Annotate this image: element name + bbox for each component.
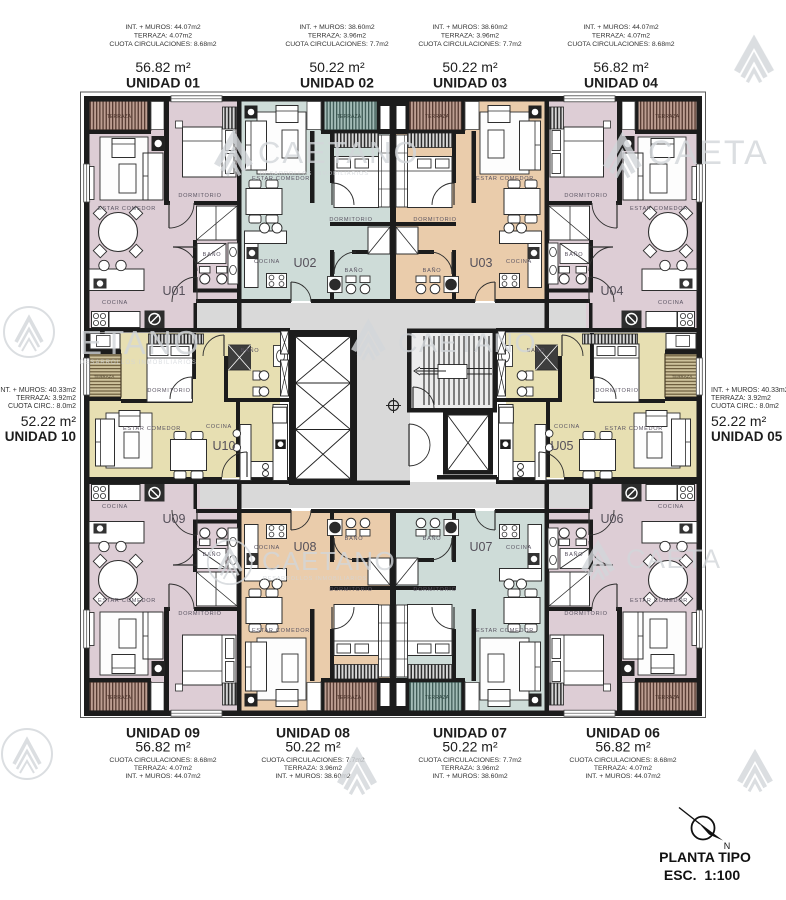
svg-text:52.22 m²: 52.22 m² (711, 413, 767, 429)
svg-text:ESTAR COMEDOR: ESTAR COMEDOR (98, 598, 156, 604)
svg-text:TERRAZA: 4.07m2: TERRAZA: 4.07m2 (592, 33, 650, 40)
svg-text:DORMITORIO: DORMITORIO (595, 388, 638, 394)
svg-text:U01: U01 (163, 284, 186, 298)
svg-text:DESARROLLOS INMOBILIARIOS: DESARROLLOS INMOBILIARIOS (260, 171, 369, 177)
svg-text:BAÑO: BAÑO (565, 551, 584, 558)
svg-text:ESTAR COMEDOR: ESTAR COMEDOR (630, 206, 688, 212)
svg-text:50.22 m²: 50.22 m² (442, 59, 498, 75)
svg-text:UNIDAD 02: UNIDAD 02 (300, 75, 374, 91)
svg-text:ESTAR COMEDOR: ESTAR COMEDOR (605, 426, 663, 432)
svg-text:TERRAZA: 3.92m2: TERRAZA: 3.92m2 (16, 395, 76, 402)
svg-text:BAÑO: BAÑO (423, 535, 442, 542)
svg-text:BAÑO: BAÑO (203, 251, 222, 258)
svg-text:ESTAR COMEDOR: ESTAR COMEDOR (476, 628, 534, 634)
svg-text:TERRAZA: TERRAZA (107, 695, 132, 701)
svg-text:COCINA: COCINA (506, 545, 532, 551)
svg-text:CUOTA CIRCULACIONES: 8.68m2: CUOTA CIRCULACIONES: 8.68m2 (109, 41, 216, 48)
svg-text:ESTAR COMEDOR: ESTAR COMEDOR (98, 206, 156, 212)
svg-text:COCINA: COCINA (206, 424, 232, 430)
svg-text:U04: U04 (601, 284, 624, 298)
svg-text:CUOTA CIRCULACIONES: 7.7m2: CUOTA CIRCULACIONES: 7.7m2 (418, 41, 522, 48)
svg-text:ESTAR COMEDOR: ESTAR COMEDOR (252, 628, 310, 634)
svg-text:CUOTA CIRCULACIONES: 7.7m2: CUOTA CIRCULACIONES: 7.7m2 (418, 757, 522, 764)
svg-text:CAETA: CAETA (626, 544, 722, 574)
svg-text:CUOTA CIRCULACIONES: 7.7m2: CUOTA CIRCULACIONES: 7.7m2 (285, 41, 389, 48)
svg-text:COCINA: COCINA (658, 504, 684, 510)
svg-text:INT. + MUROS: 40.33m2: INT. + MUROS: 40.33m2 (0, 387, 76, 394)
svg-text:DESARROLLOS INMOBILIARIOS: DESARROLLOS INMOBILIARIOS (263, 576, 367, 582)
svg-text:DORMITORIO: DORMITORIO (329, 217, 372, 223)
svg-text:TERRAZA: 4.07m2: TERRAZA: 4.07m2 (134, 33, 192, 40)
svg-text:50.22 m²: 50.22 m² (309, 59, 365, 75)
svg-text:UNIDAD 05: UNIDAD 05 (711, 429, 783, 444)
svg-text:PLANTA TIPO: PLANTA TIPO (659, 849, 751, 865)
svg-text:INT. + MUROS: 40.33m2: INT. + MUROS: 40.33m2 (711, 387, 786, 394)
svg-text:TERRAZA: TERRAZA (672, 374, 693, 379)
svg-text:TERRAZA: TERRAZA (337, 114, 362, 120)
svg-text:INT. + MUROS: 38.60m2: INT. + MUROS: 38.60m2 (432, 24, 508, 31)
svg-text:TERRAZA: TERRAZA (655, 695, 680, 701)
svg-text:56.82 m²: 56.82 m² (135, 59, 191, 75)
svg-text:56.82 m²: 56.82 m² (593, 59, 649, 75)
svg-text:DORMITORIO: DORMITORIO (178, 193, 221, 199)
svg-text:UNIDAD 03: UNIDAD 03 (433, 75, 507, 91)
svg-text:ETANO: ETANO (80, 324, 201, 361)
svg-text:CAETANO: CAETANO (262, 546, 396, 576)
svg-text:TERRAZA: 3.96m2: TERRAZA: 3.96m2 (441, 765, 499, 772)
svg-text:ESTAR COMEDOR: ESTAR COMEDOR (630, 598, 688, 604)
svg-text:BAÑO: BAÑO (565, 251, 584, 258)
svg-text:UNIDAD 01: UNIDAD 01 (126, 75, 200, 91)
svg-text:CUOTA CIRCULACIONES: 8.68m2: CUOTA CIRCULACIONES: 8.68m2 (109, 757, 216, 764)
svg-text:COCINA: COCINA (506, 259, 532, 265)
svg-text:TERRAZA: 3.96m2: TERRAZA: 3.96m2 (284, 765, 342, 772)
svg-text:UNIDAD 10: UNIDAD 10 (5, 429, 76, 444)
svg-text:TERRAZA: 3.92m2: TERRAZA: 3.92m2 (711, 395, 771, 402)
svg-text:CUOTA CIRCULACIONES: 8.68m2: CUOTA CIRCULACIONES: 8.68m2 (569, 757, 676, 764)
svg-text:CAETANO: CAETANO (398, 328, 537, 358)
svg-text:CUOTA CIRCULACIONES: 8.68m2: CUOTA CIRCULACIONES: 8.68m2 (567, 41, 674, 48)
svg-text:COCINA: COCINA (554, 424, 580, 430)
svg-text:CAETA: CAETA (648, 134, 769, 172)
svg-text:INT. + MUROS: 44.07m2: INT. + MUROS: 44.07m2 (125, 24, 201, 31)
svg-text:INT. + MUROS: 44.07m2: INT. + MUROS: 44.07m2 (585, 773, 661, 780)
svg-text:TERRAZA: TERRAZA (425, 695, 450, 701)
svg-text:52.22 m²: 52.22 m² (21, 413, 77, 429)
svg-text:TERRAZA: TERRAZA (655, 114, 680, 120)
svg-text:TERRAZA: TERRAZA (425, 114, 450, 120)
svg-text:CAETANO: CAETANO (258, 135, 420, 170)
svg-text:INT. + MUROS: 44.07m2: INT. + MUROS: 44.07m2 (125, 773, 201, 780)
svg-text:DORMITORIO: DORMITORIO (564, 611, 607, 617)
svg-text:DORMITORIO: DORMITORIO (147, 388, 190, 394)
svg-text:COCINA: COCINA (254, 259, 280, 265)
svg-text:TERRAZA: 3.96m2: TERRAZA: 3.96m2 (308, 33, 366, 40)
svg-text:BAÑO: BAÑO (345, 535, 364, 542)
svg-text:50.22 m²: 50.22 m² (285, 739, 341, 755)
svg-text:CUOTA CIRC.: 8.0m2: CUOTA CIRC.: 8.0m2 (8, 403, 76, 410)
svg-text:DORMITORIO: DORMITORIO (413, 587, 456, 593)
svg-text:UNIDAD 04: UNIDAD 04 (584, 75, 658, 91)
svg-text:COCINA: COCINA (658, 300, 684, 306)
svg-text:COCINA: COCINA (102, 300, 128, 306)
svg-text:INT. + MUROS: 38.60m2: INT. + MUROS: 38.60m2 (432, 773, 508, 780)
svg-text:ESTAR COMEDOR: ESTAR COMEDOR (476, 176, 534, 182)
svg-text:INT. + MUROS: 38.60m2: INT. + MUROS: 38.60m2 (299, 24, 375, 31)
svg-text:TERRAZA: 3.96m2: TERRAZA: 3.96m2 (441, 33, 499, 40)
svg-text:U07: U07 (470, 540, 493, 554)
svg-text:BAÑO: BAÑO (241, 347, 260, 354)
svg-text:U10: U10 (213, 439, 236, 453)
svg-text:56.82 m²: 56.82 m² (595, 739, 651, 755)
svg-text:TERRAZA: TERRAZA (337, 695, 362, 701)
svg-text:BAÑO: BAÑO (423, 267, 442, 274)
svg-text:U05: U05 (551, 439, 574, 453)
svg-text:TERRAZA: 4.07m2: TERRAZA: 4.07m2 (134, 765, 192, 772)
svg-text:BAÑO: BAÑO (203, 551, 222, 558)
svg-text:50.22 m²: 50.22 m² (442, 739, 498, 755)
svg-text:DESARROLLOS INMOBILIARIOS: DESARROLLOS INMOBILIARIOS (80, 360, 197, 366)
svg-text:U02: U02 (294, 256, 317, 270)
svg-text:ESC. 1:100: ESC. 1:100 (664, 867, 740, 883)
svg-text:DORMITORIO: DORMITORIO (178, 611, 221, 617)
svg-text:TERRAZA: TERRAZA (107, 114, 132, 120)
svg-text:U03: U03 (470, 256, 493, 270)
svg-text:COCINA: COCINA (102, 504, 128, 510)
svg-text:DORMITORIO: DORMITORIO (329, 587, 372, 593)
svg-text:U06: U06 (601, 512, 624, 526)
svg-text:DORMITORIO: DORMITORIO (413, 217, 456, 223)
svg-text:CUOTA CIRC.: 8.0m2: CUOTA CIRC.: 8.0m2 (711, 403, 779, 410)
svg-text:BAÑO: BAÑO (345, 267, 364, 274)
svg-text:TERRAZA: TERRAZA (94, 374, 115, 379)
svg-text:TERRAZA: 4.07m2: TERRAZA: 4.07m2 (594, 765, 652, 772)
svg-text:DORMITORIO: DORMITORIO (564, 193, 607, 199)
svg-text:ESTAR COMEDOR: ESTAR COMEDOR (123, 426, 181, 432)
svg-text:56.82 m²: 56.82 m² (135, 739, 191, 755)
svg-text:U09: U09 (163, 512, 186, 526)
svg-text:INT. + MUROS: 44.07m2: INT. + MUROS: 44.07m2 (583, 24, 659, 31)
